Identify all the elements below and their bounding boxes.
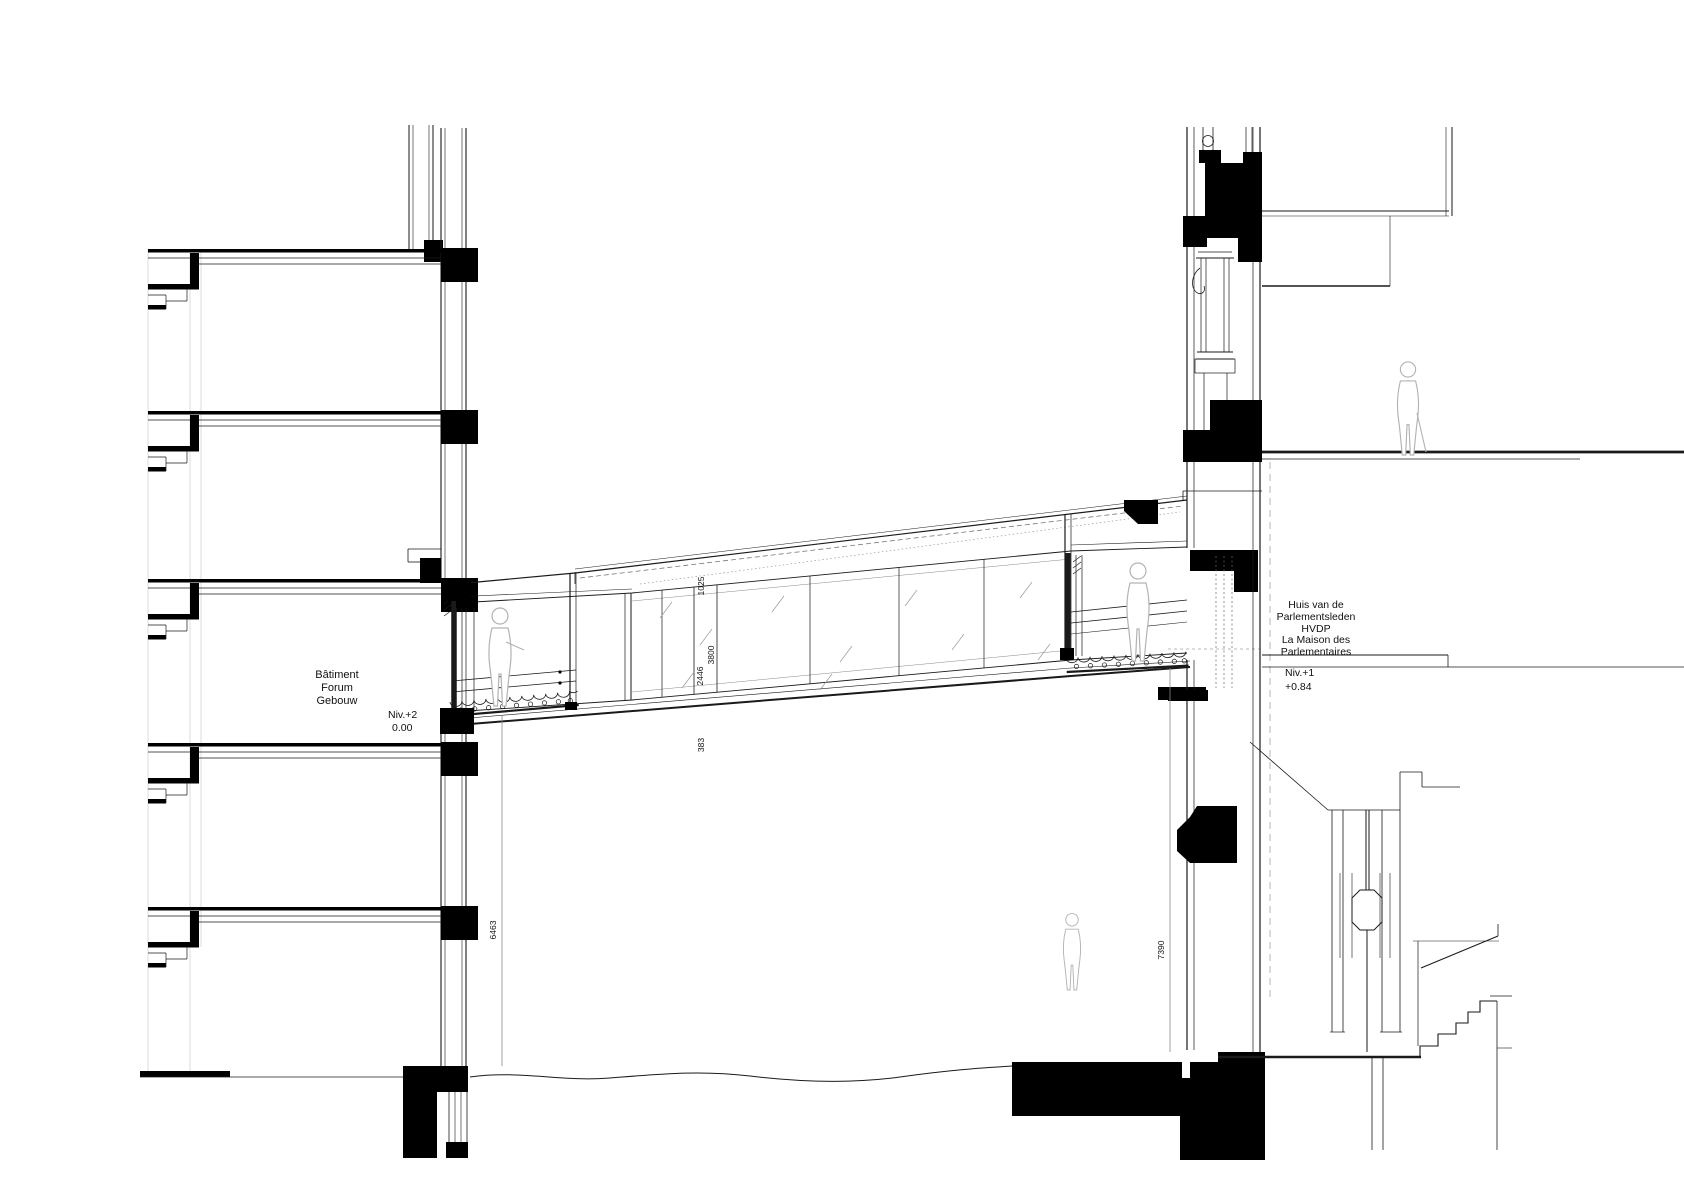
left-slab-5 [148, 906, 478, 968]
bridge-bearing-bracket [1124, 500, 1158, 524]
right-level-label: Niv.+1 [1285, 667, 1314, 679]
left-slab-4 [148, 742, 478, 804]
dimension-roof-band: 1025 [696, 576, 706, 595]
person-figure-ground [1063, 914, 1080, 990]
left-level-elevation: 0.00 [392, 722, 413, 734]
lower-cornice [1177, 806, 1237, 863]
ground-mass [1012, 1062, 1182, 1116]
glass-reflection-marks [660, 582, 1050, 690]
right-building-name-line2: Parlementsleden [1277, 611, 1356, 623]
left-building-name-line1: Bâtiment [315, 669, 358, 681]
upper-cornice [1205, 163, 1262, 262]
dimension-overall-height: 3800 [706, 645, 716, 664]
section-drawing-sheet: Bâtiment Forum Gebouw Niv.+2 0.00 Huis v… [0, 0, 1684, 1191]
hidden-roof-line [580, 506, 1183, 578]
left-slab-2 [148, 410, 478, 472]
section-drawing: Bâtiment Forum Gebouw Niv.+2 0.00 Huis v… [0, 0, 1684, 1191]
dimension-left-height: 6463 [488, 920, 498, 939]
right-building-name-line1: Huis van de [1288, 599, 1344, 611]
ground [470, 1062, 1182, 1116]
dimension-glazing-height: 2446 [695, 666, 705, 685]
rooftop-ornament [1199, 127, 1262, 163]
person-figure-right-cabin [1127, 563, 1149, 661]
left-level-label: Niv.+2 [388, 709, 417, 721]
left-building-name-line2: Forum [321, 682, 353, 694]
right-building-section [1168, 127, 1684, 1160]
left-building-section [140, 125, 478, 1158]
right-level-elevation: +0.84 [1285, 681, 1312, 693]
dimension-lines [502, 668, 1170, 1066]
glazing-mullions [570, 514, 1071, 704]
left-building-name-line3: Gebouw [317, 695, 358, 707]
mid-cornice [1183, 400, 1262, 462]
foundation-mass [1180, 1052, 1265, 1160]
dimension-floor-depth: 383 [696, 738, 706, 752]
dimension-right-height: 7390 [1156, 940, 1166, 959]
person-figure-upper-floor [1398, 362, 1419, 455]
left-slab-3 [148, 578, 478, 640]
ground-line [470, 1066, 1012, 1081]
pendant-lamp [1330, 810, 1402, 1052]
right-building-name-line5: Parlementaires [1281, 646, 1352, 658]
right-building-name-line4: La Maison des [1282, 634, 1350, 646]
person-figure-left-cabin [489, 608, 511, 706]
stair-hall-canopy [1250, 742, 1460, 810]
